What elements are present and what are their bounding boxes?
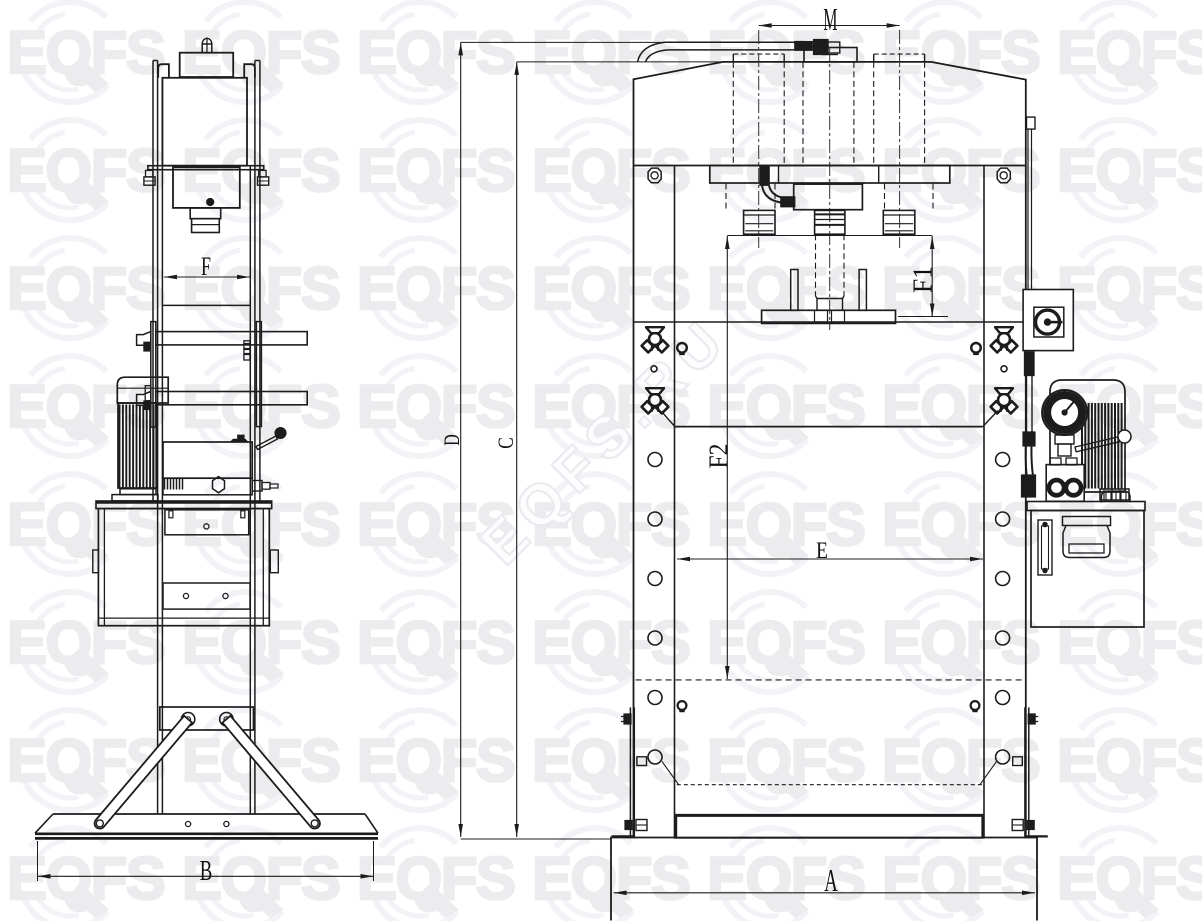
- svg-text:D: D: [439, 434, 464, 446]
- svg-text:C: C: [493, 437, 518, 449]
- svg-text:F1: F1: [908, 266, 938, 293]
- svg-text:F2: F2: [704, 444, 734, 469]
- svg-text:E: E: [816, 538, 828, 563]
- svg-text:F: F: [201, 252, 211, 281]
- svg-text:A: A: [824, 862, 838, 898]
- svg-text:M: M: [823, 1, 837, 37]
- svg-text:B: B: [200, 855, 213, 887]
